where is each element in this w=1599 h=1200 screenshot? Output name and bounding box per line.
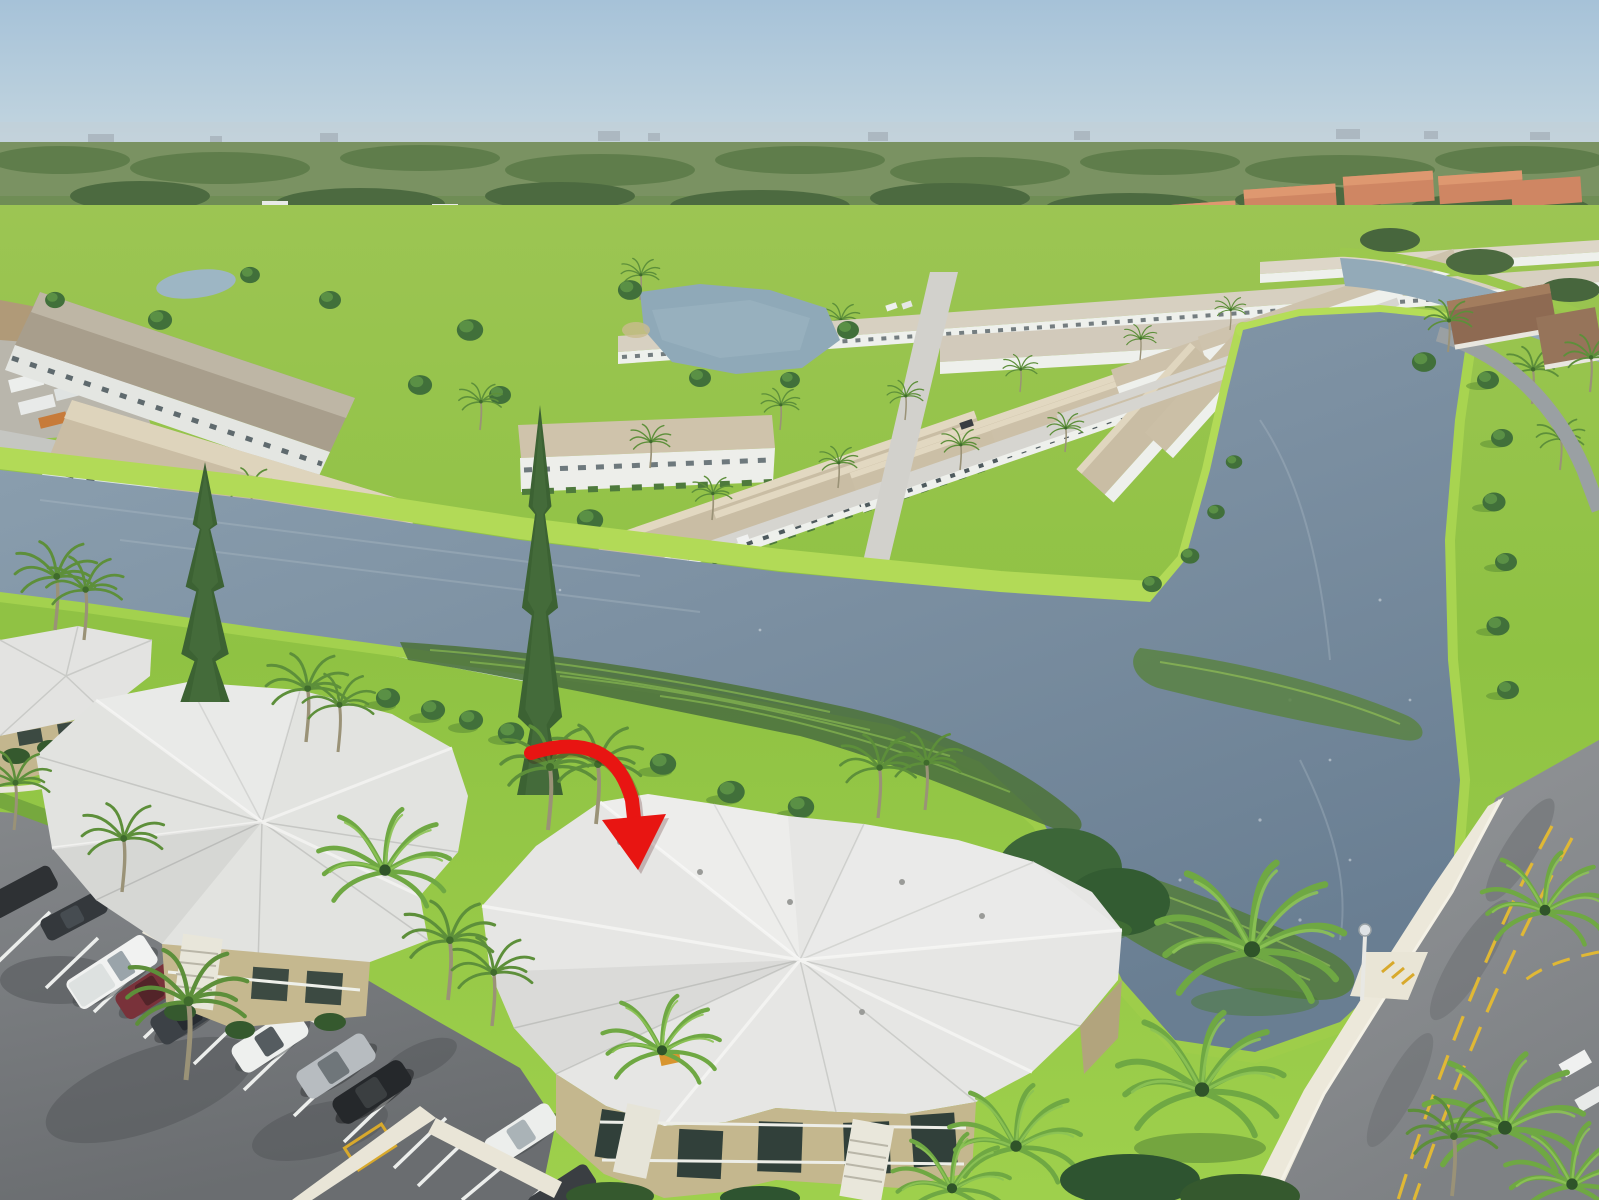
- sky: [0, 0, 1599, 160]
- palm-shadow: [1191, 988, 1319, 1016]
- brown-roof-building-2: [1536, 307, 1599, 370]
- aerial-photo: [0, 0, 1599, 1200]
- aerial-photo-stage: [0, 0, 1599, 1200]
